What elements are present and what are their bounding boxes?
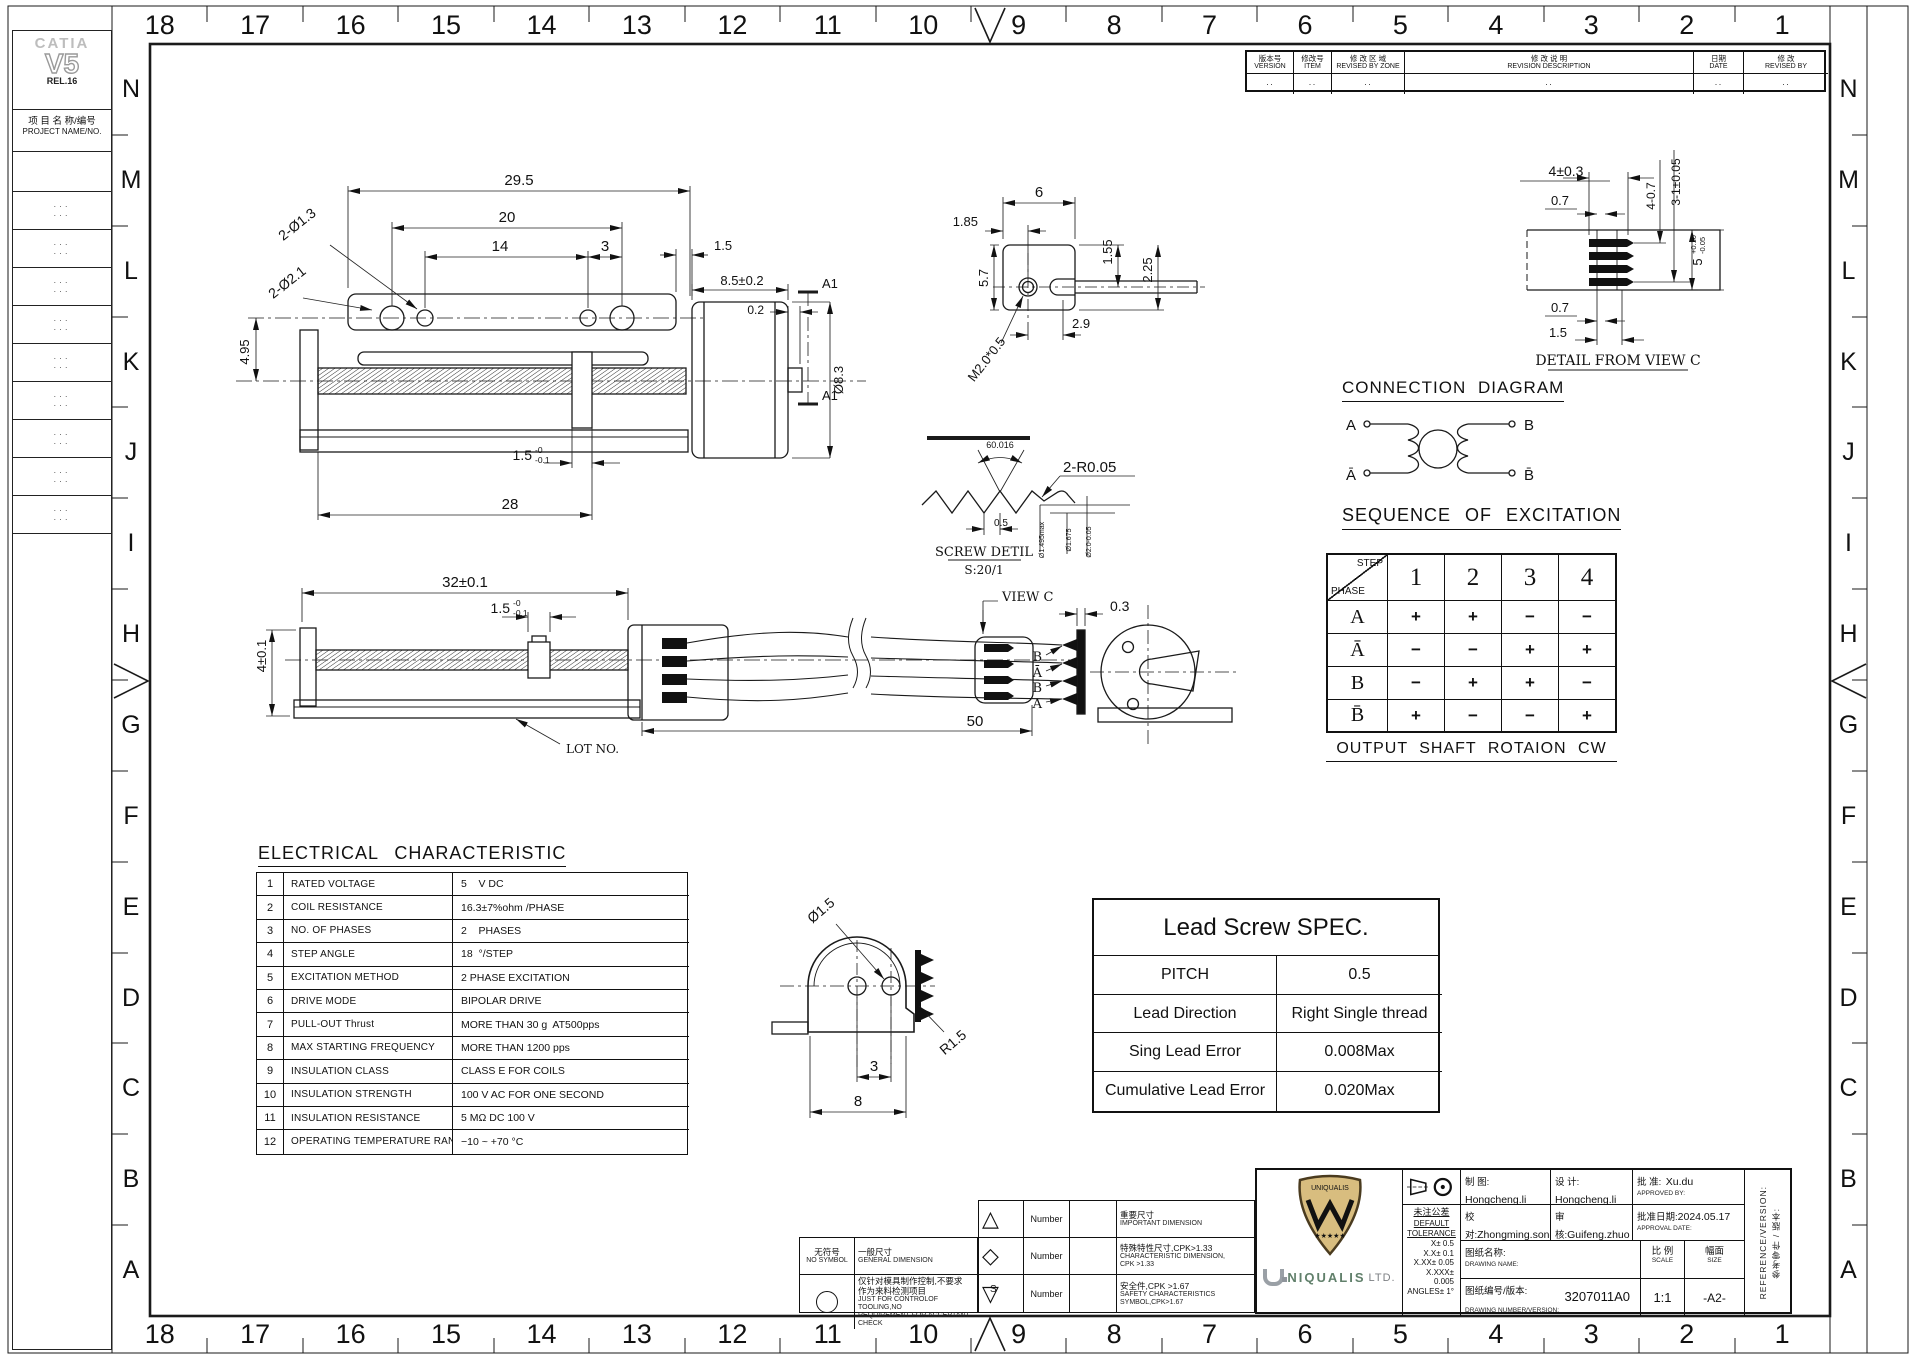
electrical-row: 7 PULL-OUT Thrust MORE THAN 30 g AT500pp… [257,1013,687,1036]
revision-header: 版本号VERSION [1247,52,1294,74]
grid-column-label: 5 [1353,6,1448,44]
bracket-front-view [772,924,944,1118]
dim-1-85: 1.85 [953,214,978,229]
step-header: 3 [1502,555,1559,601]
terminal-a: A [1346,417,1356,434]
grid-column-label: 12 [685,1316,780,1353]
revision-cell: ·· [1405,74,1694,94]
dim-14: 14 [492,238,509,255]
grid-column-label: 16 [303,1316,398,1353]
reference-version-strip: REFERENCE/VERSION: 参考零件 / 版本: [1744,1170,1794,1316]
legend-row-characteristic: ◇ Number 特殊特性尺寸,CPK>1.33CHARACTERISTIC D… [979,1238,1254,1275]
grid-column-label: 13 [589,1316,684,1353]
electrical-row: 9 INSULATION CLASS CLASS E FOR COILS [257,1060,687,1083]
project-rows-rest [13,534,111,1349]
scale-value-cell: 1:1 [1640,1278,1684,1316]
approved-by-cell: 批 准: Xu.du APPROVED BY: [1632,1170,1744,1204]
reference-version-cn: 参考零件 / 版本: [1771,1208,1782,1278]
wire-label-bbar: B̄ [1032,680,1042,696]
tolerance-item: X± 0.5 [1407,1239,1454,1249]
end-view [985,197,1205,343]
dim-5-tol-top: +0.10 [1689,235,1698,254]
grid-row-label: A [1830,1225,1867,1316]
dim-5-tol-bot: -0.05 [1698,237,1707,254]
svg-text:UNIQUALIS: UNIQUALIS [1311,1185,1349,1192]
electrical-title: ELECTRICAL CHARACTERISTIC [258,843,566,867]
company-name: NIQUALIS [1287,1270,1365,1285]
grid-row-label: H [112,589,150,680]
grid-row-label: G [1830,680,1867,771]
lead-screw-spec-table: Lead Screw SPEC. PITCH 0.5 Lead Directio… [1092,898,1440,1113]
sequence-title: SEQUENCE OF EXCITATION [1342,505,1621,530]
revision-header: 日期DATE [1694,52,1744,74]
grid-row-label: E [1830,862,1867,953]
dim-07-top: 0.7 [1551,193,1569,208]
dim-4-07: 4-0.7 [1644,182,1658,210]
tolerance-label-en2: TOLERANCE [1407,1229,1456,1239]
step-header: 4 [1559,555,1615,601]
dim-holes-2-1: 2-Ø2.1 [265,262,309,301]
legend-right-table: △ Number 重要尺寸IMPORTANT DIMENSION ◇ Numbe… [978,1200,1255,1313]
dim-20: 20 [499,209,516,226]
grid-row-label: K [1830,317,1867,408]
grid-column-label: 3 [1544,1316,1639,1353]
sequence-cell: − [1388,667,1445,700]
grid-column-label: 7 [1162,1316,1257,1353]
electrical-row: 6 DRIVE MODE BIPOLAR DRIVE [257,990,687,1013]
electrical-row: 3 NO. OF PHASES 2 PHASES [257,920,687,943]
approval-date-cell: 批准日期:2024.05.17 APPROVAL DATE: [1632,1204,1744,1240]
grid-row-label: K [112,317,150,408]
project-rows: ······ ······ ······ ······ ······ ·····… [13,192,111,534]
grid-column-label: 2 [1639,1316,1734,1353]
grid-rows-left: NMLKJIHGFEDCBA [112,44,150,1316]
dim-4-03: 4±0.3 [1549,163,1584,179]
grid-row-label: F [112,771,150,862]
section-a1-top: A1 [822,276,838,291]
grid-column-label: 14 [494,6,589,44]
grid-row-label: J [112,407,150,498]
dim-5: 5 [1690,258,1705,265]
project-sidebar: CATIA V5 REL.16 项 目 名 称/编号 PROJECT NAME/… [12,30,112,1350]
drawing-name-cell: 图纸名称: DRAWING NAME: [1460,1240,1640,1278]
sequence-cell: − [1559,667,1615,700]
grid-column-label: 11 [780,6,875,44]
sequence-cell: − [1445,634,1502,667]
sequence-cell: + [1388,601,1445,634]
screw-detail-view [922,438,1135,560]
dim-holes-1-3: 2-Ø1.3 [275,204,319,243]
dim-8-5: 8.5±0.2 [720,273,763,288]
electrical-row: 5 EXCITATION METHOD 2 PHASE EXCITATION [257,967,687,990]
first-angle-projection-icon [1407,1174,1456,1200]
tolerance-item: X.XXX± 0.005 [1407,1268,1454,1287]
size-header-cell: 幅面 SIZE [1684,1240,1744,1278]
grid-column-label: 18 [112,6,207,44]
catia-version: V5 [13,52,111,76]
grid-column-label: 15 [398,1316,493,1353]
dim-major-dia: Ø2.0-0.05 [1086,526,1093,557]
dim-07-bot: 0.7 [1551,300,1569,315]
lead-screw-row: Lead Direction Right Single thread [1094,995,1438,1034]
revision-cell: ·· [1694,74,1744,94]
grid-row-label: E [112,862,150,953]
sequence-cell: − [1388,634,1445,667]
legend-left-table: 无符号NO SYMBOL 一般尺寸GENERAL DIMENSION 仅针对模具… [799,1237,978,1313]
dim-1-55: 1.55 [1100,239,1115,264]
grid-row-label: D [112,953,150,1044]
sequence-cell: + [1445,601,1502,634]
project-row: ······ [13,420,111,458]
grid-row-label: B [1830,1134,1867,1225]
electrical-row: 4 STEP ANGLE 18 °/STEP [257,943,687,966]
sequence-cell: + [1502,667,1559,700]
dim-dia-8-3: Ø8.3 [831,366,846,394]
dim-6: 6 [1035,184,1043,201]
electrical-row: 1 RATED VOLTAGE 5 V DC [257,873,687,896]
lead-screw-title: Lead Screw SPEC. [1094,900,1438,956]
tolerance-item: X.X± 0.1 [1407,1249,1454,1259]
sequence-footer: OUTPUT SHAFT ROTAION CW [1326,740,1617,762]
reference-version-en: REFERENCE/VERSION: [1758,1186,1769,1299]
grid-column-label: 13 [589,6,684,44]
grid-row-label: I [1830,498,1867,589]
wire-label-b: B [1032,650,1042,665]
dim-2-9: 2.9 [1072,316,1090,331]
grid-column-label: 6 [1257,1316,1352,1353]
grid-column-label: 4 [1448,1316,1543,1353]
company-shield-logo: UNIQUALIS ★★★★★ [1294,1174,1366,1258]
drawing-canvas: 29.5 20 14 3 1.5 8.5±0.2 0.2 A1 A1 2-Ø1.… [0,0,1916,1359]
project-label-en: PROJECT NAME/NO. [13,127,111,136]
dim-3-1: 3-1±0.05 [1669,158,1683,206]
default-tolerance-cell: 未注公差 DEFAULT TOLERANCE X± 0.5X.X± 0.1X.X… [1402,1204,1460,1316]
tolerance-values: X± 0.5X.X± 0.1X.XX± 0.05X.XXX± 0.005ANGL… [1407,1239,1456,1296]
grid-column-label: 4 [1448,6,1543,44]
company-suffix: LTD. [1369,1272,1396,1284]
grid-column-label: 10 [876,6,971,44]
project-row: ······ [13,382,111,420]
top-view [236,186,866,520]
grid-column-label: 9 [971,6,1066,44]
grid-row-label: H [1830,589,1867,680]
screw-detail-scale: S:20/1 [964,563,1003,577]
lead-screw-row: Sing Lead Error 0.008Max [1094,1033,1438,1072]
connection-diagram [1364,421,1515,476]
grid-row-label: L [1830,226,1867,317]
grid-row-label: D [1830,953,1867,1044]
svg-text:★★★★★: ★★★★★ [1314,1232,1345,1240]
connection-diagram-title: CONNECTION DIAGRAM [1342,378,1564,402]
project-name-header: 项 目 名 称/编号 PROJECT NAME/NO. [13,110,111,152]
title-block: UNIQUALIS ★★★★★ NIQUALIS LTD. 未注公差 DEFAU… [1255,1168,1792,1314]
dim-mid-nut-tt: -0 [513,598,521,608]
tolerance-item: X.XX± 0.05 [1407,1258,1454,1268]
grid-row-label: B [112,1134,150,1225]
lead-screw-row: PITCH 0.5 [1094,956,1438,995]
grid-column-label: 5 [1353,1316,1448,1353]
grid-column-label: 16 [303,6,398,44]
sequence-cell: + [1502,634,1559,667]
sequence-cell: − [1559,601,1615,634]
grid-row-label: G [112,680,150,771]
drawn-by-cell: 制 图: Hongcheng.li DRAWN BY: [1460,1170,1550,1204]
revision-cell: ·· [1744,74,1828,94]
step-header: 1 [1388,555,1445,601]
screw-detail-title: SCREW DETIL [935,545,1033,560]
revision-cell: ·· [1247,74,1294,94]
dim-dia-1-5: Ø1.5 [804,894,838,926]
grid-row-label: F [1830,771,1867,862]
revision-header: 修 改 区 域REVISED BY ZONE [1332,52,1405,74]
grid-column-label: 17 [207,6,302,44]
grid-row-label: N [1830,44,1867,135]
dim-5-7: 5.7 [976,269,991,287]
legend-row-tooling: 仅针对模具制作控制,不要求 作为来料检测项目JUST FOR CONTROLOF… [800,1275,977,1312]
grid-row-label: C [1830,1043,1867,1134]
view-c-label: VIEW C [1001,590,1054,605]
catia-logo: CATIA V5 REL.16 [13,31,111,110]
grid-row-label: C [112,1043,150,1134]
tolerance-item: ANGLES± 1° [1407,1287,1454,1297]
lot-no-label: LOT NO. [566,742,619,756]
dim-b3: 3 [870,1058,878,1075]
grid-row-label: M [112,135,150,226]
project-empty-row [13,152,111,192]
size-value-cell: -A2- [1684,1278,1744,1316]
dim-r-1-5: R1.5 [936,1026,969,1057]
revision-cell: ·· [1294,74,1332,94]
grid-column-label: 18 [112,1316,207,1353]
dim-4-95: 4.95 [237,339,252,364]
wire-label-abar: Ā [1032,665,1043,681]
dim-32: 32±0.1 [442,574,488,591]
drawing-number-value: 3207011A0 [1564,1289,1630,1304]
project-row: ······ [13,230,111,268]
dim-0-2: 0.2 [747,303,764,317]
terminal-abar: Ā [1346,467,1356,484]
drawing-sheet: 29.5 20 14 3 1.5 8.5±0.2 0.2 A1 A1 2-Ø1.… [0,0,1916,1359]
drawing-number-cell: 图纸编号/版本: DRAWING NUMBER/VERSION: 3207011… [1460,1278,1640,1316]
grid-column-label: 8 [1066,6,1161,44]
terminal-bbar: B̄ [1524,467,1534,484]
safety-symbol-icon: ▽S [979,1275,1024,1312]
dim-minor-dia: Ø1.495max [1039,521,1046,558]
dim-thread-angle: 60.016 [986,440,1014,450]
sequence-cell: − [1502,700,1559,731]
grid-column-label: 15 [398,6,493,44]
electrical-row: 8 MAX STARTING FREQUENCY MORE THAN 1200 … [257,1037,687,1060]
grid-column-label: 8 [1066,1316,1161,1353]
dim-thread: M2.0*0.5 [965,334,1009,384]
dim-mid-nut-tb: -0.1 [513,608,528,618]
scale-header-cell: 比 例 SCALE [1640,1240,1684,1278]
sequence-cell: − [1502,601,1559,634]
dim-0-3: 0.3 [1110,598,1130,614]
sequence-cell: + [1445,667,1502,700]
dim-4-01: 4±0.1 [254,640,269,672]
grid-row-label: L [112,226,150,317]
grid-row-label: J [1830,407,1867,498]
dim-1-5-bot: 1.5 [1549,325,1567,340]
detail-c-title: DETAIL FROM VIEW C [1535,353,1700,369]
phase-label: Ā [1328,634,1388,667]
project-row: ······ [13,192,111,230]
revision-header: 修改号ITEM [1294,52,1332,74]
phase-label: B [1328,667,1388,700]
tolerance-label-cn: 未注公差 [1407,1207,1456,1217]
electrical-row: 11 INSULATION RESISTANCE 5 MΩ DC 100 V [257,1107,687,1130]
diamond-symbol-icon: ◇ [979,1238,1024,1275]
grid-column-label: 7 [1162,6,1257,44]
project-row: ······ [13,306,111,344]
dim-28: 28 [502,496,519,513]
sequence-cell: + [1559,700,1615,731]
sequence-table: STEP PHASE 1 2 3 4 A + + − − Ā − − + + B… [1326,553,1617,733]
checked-by-cell: 审 核:Guifeng.zhuo CHECKED BY: [1550,1204,1632,1240]
grid-row-label: N [112,44,150,135]
grid-column-label: 14 [494,1316,589,1353]
sequence-cell: + [1388,700,1445,731]
electrical-table: 1 RATED VOLTAGE 5 V DC 2 COIL RESISTANCE… [256,872,688,1155]
grid-column-label: 2 [1639,6,1734,44]
grid-column-label: 12 [685,6,780,44]
project-row: ······ [13,344,111,382]
dim-pitch-dia: Ø1.675 [1066,528,1073,551]
grid-column-label: 17 [207,1316,302,1353]
grid-rows-right: NMLKJIHGFEDCBA [1830,44,1867,1316]
dim-nut-tol-top: -0 [535,445,543,455]
company-logo-cell: UNIQUALIS ★★★★★ NIQUALIS LTD. [1257,1170,1402,1316]
company-u-mark-icon [1263,1269,1284,1286]
assembly-side-view [266,588,1240,745]
grid-row-label: A [112,1225,150,1316]
grid-column-label: 9 [971,1316,1066,1353]
revision-header: 修 改REVISED BY [1744,52,1828,74]
dim-50: 50 [967,713,984,730]
dim-mid-nut: 1.5 [491,600,511,616]
dim-radius: 2-R0.05 [1063,459,1116,476]
grid-column-label: 3 [1544,6,1639,44]
project-row: ······ [13,268,111,306]
electrical-row: 10 INSULATION STRENGTH 100 V AC FOR ONE … [257,1084,687,1107]
dim-b8: 8 [854,1093,862,1110]
sequence-cell: − [1445,700,1502,731]
sequence-corner-cell: STEP PHASE [1328,555,1388,601]
phase-label: A [1328,601,1388,634]
collated-by-cell: 校 对:Zhongming.song COLLATED BY: [1460,1204,1550,1240]
designed-by-cell: 设 计: Hongcheng.li DESIGNED BY: [1550,1170,1632,1204]
grid-column-label: 1 [1734,6,1829,44]
circle-symbol-icon [816,1291,838,1313]
legend-row-no-symbol: 无符号NO SYMBOL 一般尺寸GENERAL DIMENSION [800,1238,977,1275]
project-row: ······ [13,458,111,496]
grid-row-label: M [1830,135,1867,226]
dim-3: 3 [601,238,609,255]
dim-nut-1-5: 1.5 [513,447,533,463]
project-label-cn: 项 目 名 称/编号 [13,113,111,127]
company-name-line: NIQUALIS LTD. [1261,1269,1398,1286]
triangle-symbol-icon: △ [979,1201,1024,1238]
grid-column-label: 6 [1257,6,1352,44]
grid-columns-top: 181716151413121110987654321 [112,6,1830,44]
lead-screw-row: Cumulative Lead Error 0.020Max [1094,1072,1438,1111]
catia-release: REL.16 [13,76,111,86]
dim-nut-tol-bot: -0.1 [535,455,550,465]
wire-label-a: A [1032,697,1043,712]
dim-pitch: 0.5 [994,518,1008,529]
terminal-b: B [1524,417,1534,434]
phase-label: B̄ [1328,700,1388,731]
revision-header: 修 改 说 明REVISION DESCRIPTION [1405,52,1694,74]
dim-2-25: 2.25 [1140,257,1155,282]
step-header: 2 [1445,555,1502,601]
projection-symbol-cell [1402,1170,1460,1204]
revision-cell: ·· [1332,74,1405,94]
tolerance-label-en1: DEFAULT [1407,1219,1456,1229]
grid-column-label: 1 [1734,1316,1829,1353]
grid-row-label: I [112,498,150,589]
dim-total: 29.5 [504,172,533,189]
legend-row-safety: ▽S Number 安全件,CPK >1.67SAFETY CHARACTERI… [979,1275,1254,1312]
project-row: ······ [13,496,111,534]
electrical-row: 2 COIL RESISTANCE 16.3±7%ohm /PHASE [257,896,687,919]
legend-row-important: △ Number 重要尺寸IMPORTANT DIMENSION [979,1201,1254,1238]
revision-table: 版本号VERSION 修改号ITEM 修 改 区 域REVISED BY ZON… [1245,50,1826,92]
dim-1-5: 1.5 [714,238,732,253]
electrical-row: 12 OPERATING TEMPERATURE RANGE −10 ~ +70… [257,1130,687,1153]
sequence-cell: + [1559,634,1615,667]
